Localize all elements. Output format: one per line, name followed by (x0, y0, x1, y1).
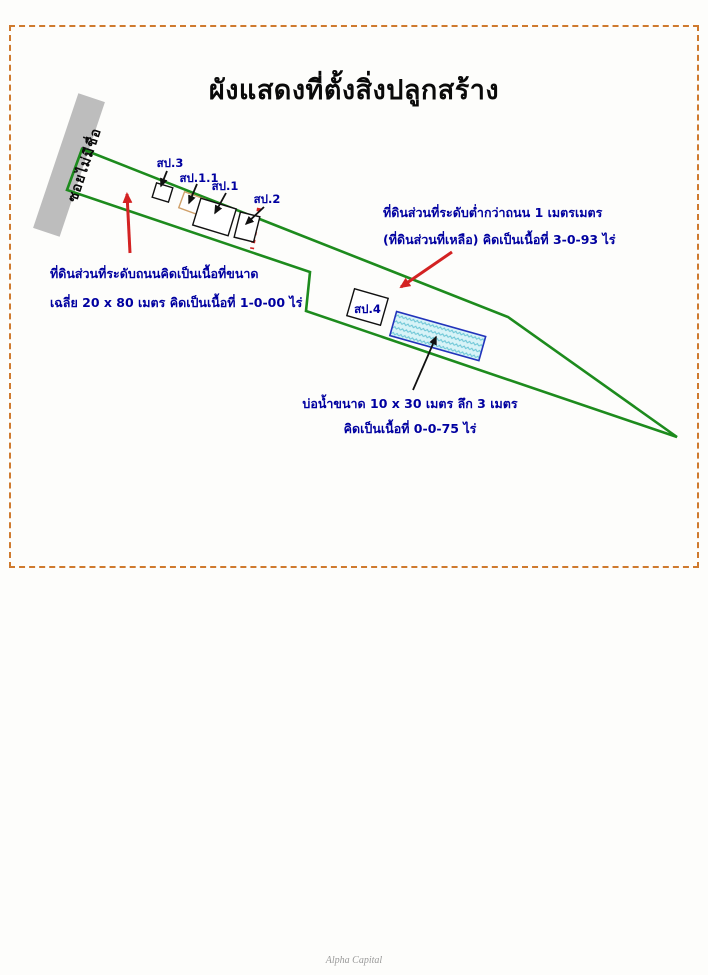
note-road-level-line2: เฉลี่ย 20 x 80 เมตร คิดเป็นเนื้อที่ 1-0-… (50, 288, 302, 317)
arrow-to-road-level-area (127, 194, 130, 253)
note-road-level-line1: ที่ดินส่วนที่ระดับถนนคิดเป็นเนื้อที่ขนาด (50, 259, 302, 288)
note-lower-level-line1: ที่ดินส่วนที่ระดับต่ำกว่าถนน 1 เมตรเมตร (383, 199, 615, 226)
building-sp2 (234, 212, 260, 242)
building-sp1 (193, 198, 237, 236)
label-sp2: สป.2 (249, 191, 285, 209)
footer-watermark: Alpha Capital (0, 955, 708, 966)
note-road-level-area: ที่ดินส่วนที่ระดับถนนคิดเป็นเนื้อที่ขนาด… (50, 259, 302, 317)
arrow-to-sp3 (161, 171, 167, 186)
note-lower-level-area: ที่ดินส่วนที่ระดับต่ำกว่าถนน 1 เมตรเมตร … (383, 199, 615, 253)
label-sp4: สป.4 (349, 301, 386, 319)
note-pond-line1: บ่อน้ำขนาด 10 x 30 เมตร ลึก 3 เมตร (298, 391, 522, 416)
pond (390, 312, 486, 361)
note-pond: บ่อน้ำขนาด 10 x 30 เมตร ลึก 3 เมตร คิดเป… (298, 391, 522, 441)
note-pond-line2: คิดเป็นเนื้อที่ 0-0-75 ไร่ (298, 416, 522, 441)
building-sp3 (152, 183, 173, 202)
document-page: ผังแสดงที่ตั้งสิ่งปลูกสร้าง (0, 0, 708, 975)
note-lower-level-line2: (ที่ดินส่วนที่เหลือ) คิดเป็นเนื้อที่ 3-0… (383, 226, 615, 253)
arrow-to-lower-level-area (401, 252, 452, 287)
label-sp1: สป.1 (207, 178, 243, 196)
